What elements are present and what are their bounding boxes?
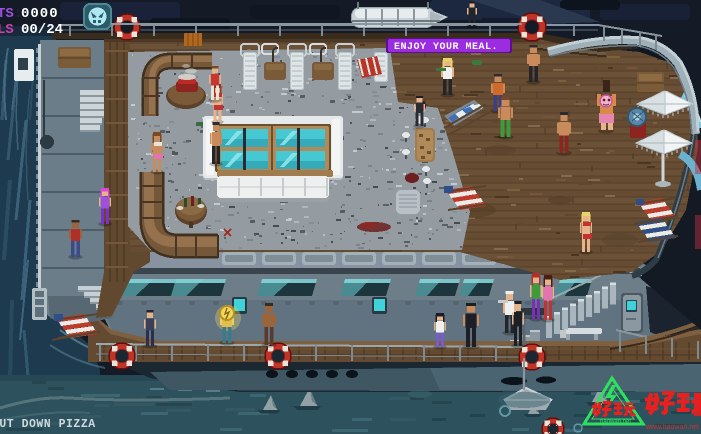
svg-text:LS: LS [0,22,14,38]
svg-text:PUT DOWN PIZZA: PUT DOWN PIZZA [0,418,96,431]
svg-text:0000: 0000 [21,6,59,22]
svg-text:00/24: 00/24 [21,22,63,38]
svg-text:haowan.net: haowan.net [600,419,631,425]
svg-text:ENJOY YOUR MEAL.: ENJOY YOUR MEAL. [394,42,498,53]
svg-text:TS: TS [0,6,14,22]
svg-text:www.haowan.net: www.haowan.net [645,424,699,431]
